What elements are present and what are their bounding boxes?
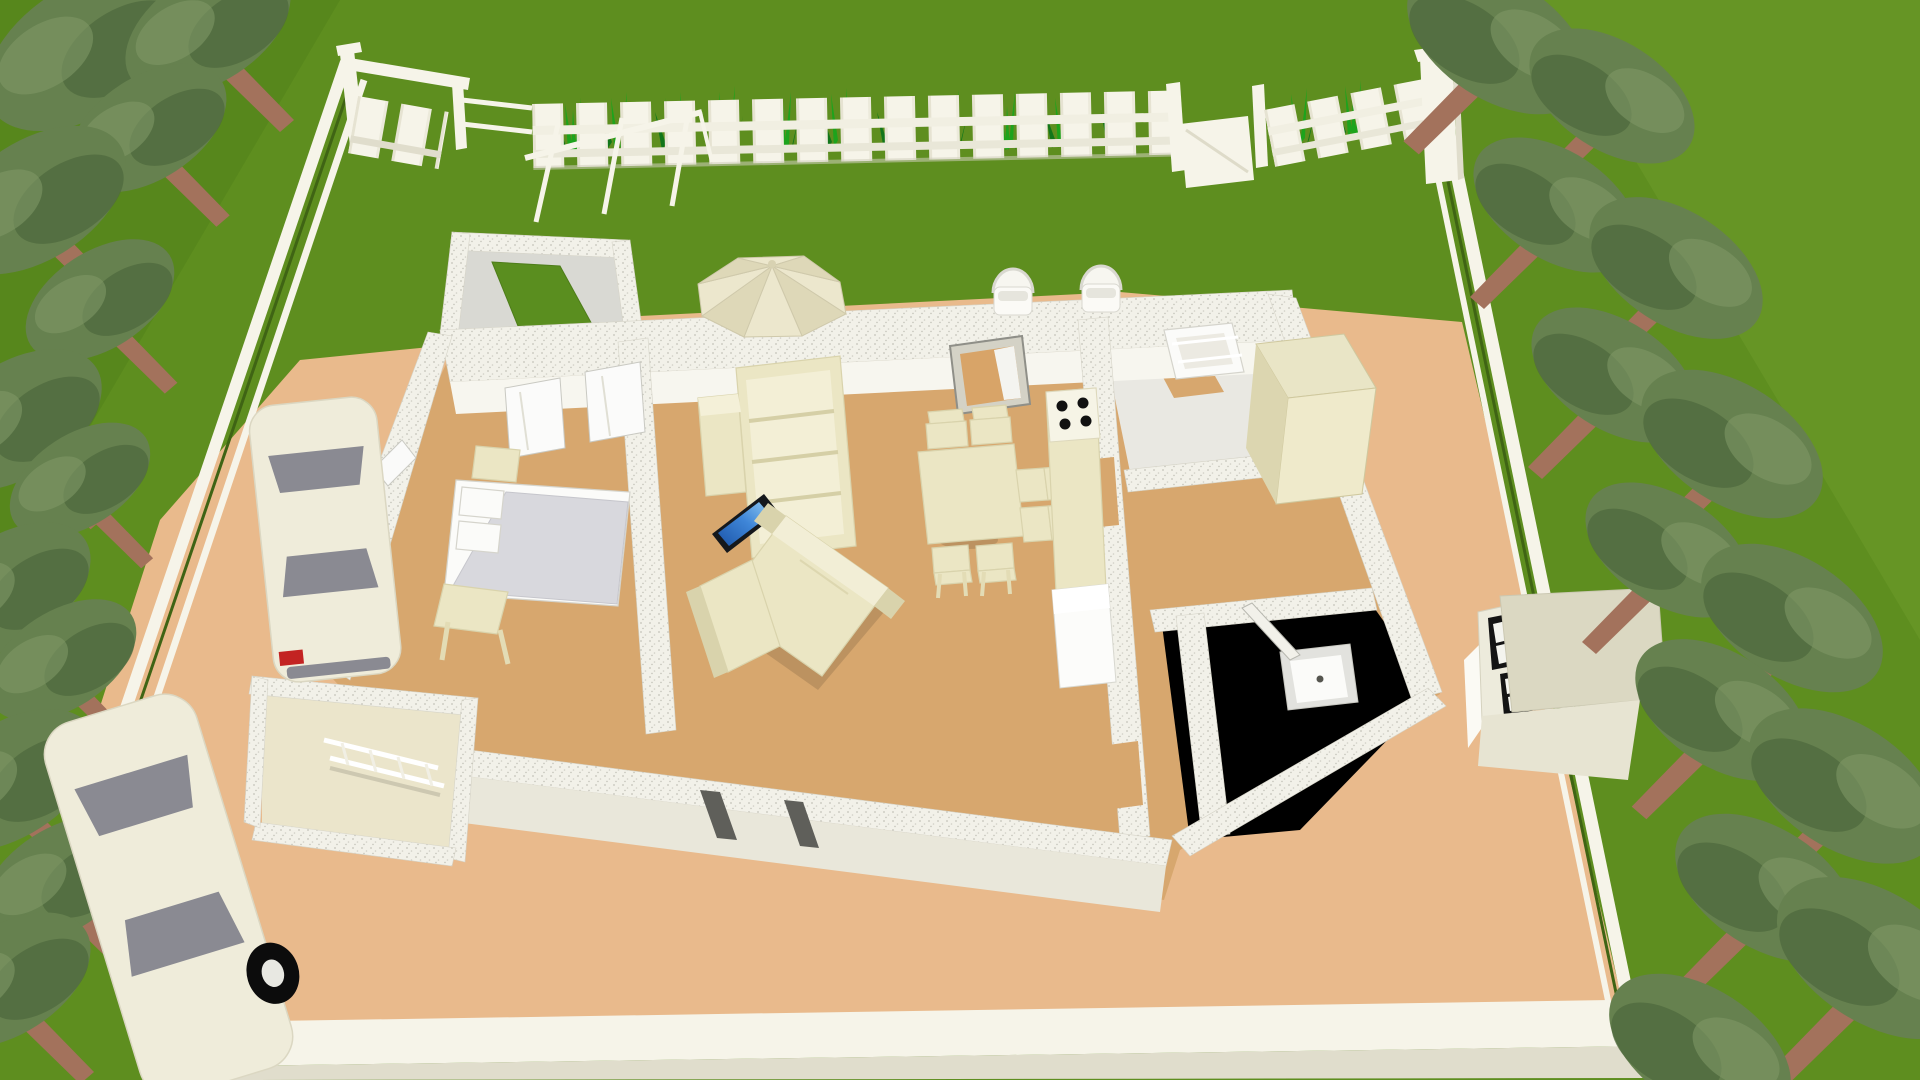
garden-chair[interactable] <box>993 269 1033 315</box>
dining-chair[interactable] <box>970 405 1012 445</box>
crib[interactable] <box>1164 323 1244 379</box>
burner <box>1060 419 1071 430</box>
wall-picture-window[interactable] <box>950 336 1030 414</box>
burner <box>1057 401 1068 412</box>
drain <box>1317 676 1324 683</box>
doorway-bath <box>1108 741 1143 809</box>
stove[interactable] <box>1046 388 1100 442</box>
nightstand[interactable] <box>472 446 520 482</box>
garden-chair[interactable] <box>1081 266 1121 312</box>
burner <box>1078 398 1089 409</box>
burner <box>1081 416 1092 427</box>
window <box>585 362 645 442</box>
annex-floor <box>262 690 466 850</box>
pillow <box>459 487 504 519</box>
window <box>505 378 565 458</box>
pillow <box>456 521 501 553</box>
dining-chair[interactable] <box>926 409 968 449</box>
fridge[interactable] <box>1052 584 1116 688</box>
wardrobe[interactable] <box>1246 334 1376 504</box>
dining-table[interactable] <box>918 444 1024 544</box>
sideboard[interactable] <box>698 394 746 496</box>
scene-canvas[interactable] <box>0 0 1920 1080</box>
home-design-3d-viewport[interactable] <box>0 0 1920 1080</box>
car-taillight <box>279 650 304 666</box>
